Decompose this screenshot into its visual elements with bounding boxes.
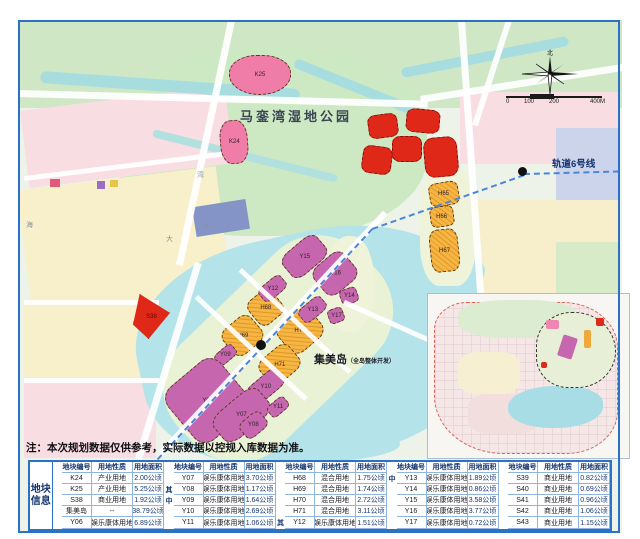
table-cell-land-use: -- (92, 506, 133, 517)
table-cell-land-use: 娱乐康体用地 (204, 484, 245, 495)
table-column-header: 用地性质 (92, 462, 133, 473)
table-qizhong-marker (53, 506, 62, 517)
parcel-unlabeled (360, 144, 394, 176)
table-row-header: 地块信息 (30, 462, 53, 529)
table-cell-land-area: 1.75公顷 (356, 473, 387, 484)
table-column-header: 地块编号 (62, 462, 92, 473)
rail-station-dot (518, 167, 527, 176)
scale-tick: 400M (590, 99, 605, 105)
parcel-label: H67 (439, 248, 450, 254)
table-cell-parcel-id: Y06 (62, 517, 92, 528)
island-label: 集美岛 (314, 354, 347, 366)
table-qizhong-marker (165, 517, 174, 528)
table-cell-land-use: 商业用地 (538, 517, 579, 528)
table-qizhong-marker: 其 (276, 517, 285, 528)
table-cell-land-area: 1.89公顷 (468, 473, 499, 484)
table-cell-parcel-id: S40 (508, 484, 538, 495)
parcel-label: S38 (146, 314, 157, 320)
table-cell-land-use: 娱乐康体用地 (204, 495, 245, 506)
table-cell-parcel-id: H69 (285, 484, 315, 495)
table-group-1: 地块编号用地性质用地面积K24产业用地2.00公顷K25产业用地5.25公顷S3… (53, 462, 164, 529)
table-cell-land-area: 1.15公顷 (579, 517, 610, 528)
table-qizhong-marker: 其 (165, 484, 174, 495)
table-column-header: 用地性质 (427, 462, 468, 473)
table-qizhong-marker (499, 473, 508, 484)
table-cell-land-area: 2.69公顷 (245, 506, 276, 517)
table-cell-parcel-id: Y16 (397, 506, 427, 517)
table-cell-land-area: 38.79公顷 (133, 506, 164, 517)
table-column-header: 用地面积 (579, 462, 610, 473)
table-cell-land-use: 娱乐康体用地 (427, 495, 468, 506)
table-cell-land-area: 0.86公顷 (468, 484, 499, 495)
table-cell-parcel-id: Y10 (174, 506, 204, 517)
table-group-4: 地块编号用地性质用地面积中Y13娱乐康体用地1.89公顷Y14娱乐康体用地0.8… (388, 462, 499, 529)
parcel-label: Y17 (331, 313, 342, 319)
table-qizhong-marker (388, 517, 397, 528)
road-char: 海 (26, 220, 33, 230)
table-cell-land-area: 2.00公顷 (133, 473, 164, 484)
scale-bar: 0 100 200 400M (506, 92, 606, 106)
table-qizhong-marker (53, 484, 62, 495)
parcel-unlabeled (366, 112, 399, 140)
parcel-label: Y08 (248, 422, 259, 428)
table-cell-parcel-id: K25 (62, 484, 92, 495)
inset-overview-map (427, 293, 630, 459)
table-column-header: 用地面积 (468, 462, 499, 473)
table-cell-land-use: 产业用地 (92, 473, 133, 484)
table-qizhong-marker (388, 484, 397, 495)
parcel-label: Y13 (307, 307, 318, 313)
table-column-header: 用地面积 (356, 462, 387, 473)
table-column-header: 地块编号 (397, 462, 427, 473)
inset-parcel-red (596, 318, 604, 326)
table-cell-parcel-id: Y15 (397, 495, 427, 506)
table-qizhong-marker (499, 495, 508, 506)
table-cell-land-use: 混合用地 (315, 506, 356, 517)
table-cell-land-use: 商业用地 (538, 473, 579, 484)
table-cell-land-area: 3.11公顷 (356, 506, 387, 517)
table-qizhong-marker (165, 473, 174, 484)
parcel-label: K24 (229, 139, 240, 145)
table-marker-cell (276, 462, 285, 473)
table-cell-land-use: 混合用地 (315, 473, 356, 484)
table-cell-land-area: 0.69公顷 (579, 484, 610, 495)
compass-north-label: 北 (547, 49, 553, 57)
table-cell-land-use: 娱乐康体用地 (204, 517, 245, 528)
table-cell-land-area: 0.96公顷 (579, 495, 610, 506)
table-cell-land-area: 1.51公顷 (356, 517, 387, 528)
table-qizhong-marker (165, 506, 174, 517)
planning-map-page: { "note": "注：本次规划数据仅供参考，实际数据以控规入库数据为准。",… (0, 0, 640, 539)
table-cell-land-use: 商业用地 (538, 506, 579, 517)
table-cell-parcel-id: Y09 (174, 495, 204, 506)
table-qizhong-marker (53, 473, 62, 484)
table-group-5: 地块编号用地性质用地面积S39商业用地0.82公顷S40商业用地0.69公顷S4… (499, 462, 610, 529)
table-qizhong-marker (388, 495, 397, 506)
table-cell-parcel-id: H71 (285, 506, 315, 517)
parcel-label: K25 (255, 72, 266, 78)
table-cell-parcel-id: Y08 (174, 484, 204, 495)
table-cell-land-area: 2.72公顷 (356, 495, 387, 506)
table-qizhong-marker (499, 506, 508, 517)
inset-parcel-pink (546, 320, 559, 329)
table-cell-land-area: 1.64公顷 (245, 495, 276, 506)
table-cell-land-use: 娱乐康体用地 (427, 484, 468, 495)
island-label-group: 集美岛（全岛整体开发） (314, 350, 395, 368)
small-block (50, 179, 60, 187)
table-cell-parcel-id: H68 (285, 473, 315, 484)
table-marker-cell (388, 462, 397, 473)
table-column-header: 用地面积 (245, 462, 276, 473)
table-cell-land-use: 产业用地 (92, 484, 133, 495)
table-qizhong-marker (388, 506, 397, 517)
table-cell-land-area: 6.89公顷 (133, 517, 164, 528)
table-cell-land-use: 商业用地 (538, 495, 579, 506)
table-cell-land-area: 3.58公顷 (468, 495, 499, 506)
inset-parcel-orange (584, 330, 591, 348)
table-cell-land-area: 1.06公顷 (245, 517, 276, 528)
table-cell-land-area: 1.06公顷 (579, 506, 610, 517)
table-marker-cell (165, 462, 174, 473)
parcel-label: H65 (438, 191, 449, 197)
rail-line-label: 轨道6号线 (552, 156, 595, 170)
table-group-2: 地块编号用地性质用地面积Y07娱乐康体用地3.70公顷其Y08娱乐康体用地1.1… (165, 462, 276, 529)
table-cell-land-use: 娱乐康体用地 (204, 473, 245, 484)
table-cell-parcel-id: S38 (62, 495, 92, 506)
table-cell-land-area: 0.72公顷 (468, 517, 499, 528)
small-block (97, 181, 105, 189)
park-label: 马銮湾湿地公园 (240, 106, 352, 125)
table-cell-land-area: 1.74公顷 (356, 484, 387, 495)
table-cell-land-area: 3.77公顷 (468, 506, 499, 517)
table-qizhong-marker (53, 517, 62, 528)
table-cell-land-use: 娱乐康体用地 (427, 506, 468, 517)
parcel-label: Y09 (220, 352, 231, 358)
parcel-label: Y11 (273, 404, 283, 410)
map-disclaimer-note: 注：本次规划数据仅供参考，实际数据以控规入库数据为准。 (26, 440, 310, 455)
parcel-K25: K25 (229, 55, 291, 95)
table-cell-land-area: 1.92公顷 (133, 495, 164, 506)
inset-parcel-red (541, 362, 547, 368)
table-column-header: 用地性质 (204, 462, 245, 473)
parcel-label: H66 (436, 214, 447, 220)
table-qizhong-marker (276, 506, 285, 517)
parcel-label: Y12 (267, 286, 278, 292)
table-cell-parcel-id: S42 (508, 506, 538, 517)
table-cell-land-use: 商业用地 (92, 495, 133, 506)
table-cell-parcel-id: S43 (508, 517, 538, 528)
table-qizhong-marker (499, 517, 508, 528)
road-char: 道 (202, 222, 209, 232)
table-qizhong-marker (276, 484, 285, 495)
table-column-header: 地块编号 (285, 462, 315, 473)
table-cell-parcel-id: H70 (285, 495, 315, 506)
inset-yellow-area (458, 352, 520, 394)
table-cell-land-use: 娱乐康体用地 (427, 473, 468, 484)
table-column-header: 地块编号 (508, 462, 538, 473)
table-cell-land-use: 混合用地 (315, 484, 356, 495)
parcel-label: Y14 (344, 293, 355, 299)
scale-tick: 100 (524, 99, 534, 105)
table-cell-parcel-id: S39 (508, 473, 538, 484)
table-column-header: 地块编号 (174, 462, 204, 473)
table-qizhong-marker (276, 473, 285, 484)
scale-tick: 200 (549, 99, 559, 105)
table-cell-land-use: 娱乐康体用地 (204, 506, 245, 517)
small-block (110, 180, 118, 187)
table-qizhong-marker (499, 484, 508, 495)
table-cell-land-use: 混合用地 (315, 495, 356, 506)
table-cell-parcel-id: Y12 (285, 517, 315, 528)
table-cell-parcel-id: Y07 (174, 473, 204, 484)
table-column-header: 用地性质 (315, 462, 356, 473)
parcel-label: H68 (260, 305, 271, 311)
table-cell-land-use: 商业用地 (538, 484, 579, 495)
table-cell-land-area: 5.25公顷 (133, 484, 164, 495)
table-cell-land-area: 0.82公顷 (579, 473, 610, 484)
table-cell-parcel-id: S41 (508, 495, 538, 506)
parcel-label: Y15 (299, 254, 310, 260)
table-cell-land-use: 娱乐康体用地 (92, 517, 133, 528)
table-qizhong-marker (53, 495, 62, 506)
table-qizhong-marker: 中 (165, 495, 174, 506)
parcel-H67: H67 (428, 228, 461, 274)
parcel-unlabeled (405, 108, 441, 135)
parcel-label: Y10 (260, 384, 271, 390)
table-cell-land-use: 娱乐康体用地 (427, 517, 468, 528)
table-column-header: 用地面积 (133, 462, 164, 473)
parcel-unlabeled (422, 136, 459, 179)
road-char: 湾 (197, 170, 204, 180)
table-qizhong-marker (276, 495, 285, 506)
table-cell-land-use: 娱乐康体用地 (315, 517, 356, 528)
table-cell-parcel-id: Y13 (397, 473, 427, 484)
compass-rose-icon: 北 (520, 48, 582, 98)
table-cell-parcel-id: 集美岛 (62, 506, 92, 517)
table-cell-parcel-id: K24 (62, 473, 92, 484)
table-cell-parcel-id: Y14 (397, 484, 427, 495)
table-cell-parcel-id: Y17 (397, 517, 427, 528)
inset-lake (508, 386, 603, 428)
table-cell-land-area: 3.70公顷 (245, 473, 276, 484)
table-qizhong-marker: 中 (388, 473, 397, 484)
table-groups: 地块编号用地性质用地面积K24产业用地2.00公顷K25产业用地5.25公顷S3… (53, 462, 611, 529)
road (24, 378, 159, 383)
table-group-3: 地块编号用地性质用地面积H68混合用地1.75公顷H69混合用地1.74公顷H7… (276, 462, 387, 529)
table-column-header: 用地性质 (538, 462, 579, 473)
island-sublabel: （全岛整体开发） (347, 359, 395, 365)
table-cell-parcel-id: Y11 (174, 517, 204, 528)
parcel-unlabeled (392, 136, 422, 162)
table-marker-cell (53, 462, 62, 473)
parcel-info-table: 地块信息 地块编号用地性质用地面积K24产业用地2.00公顷K25产业用地5.2… (28, 460, 612, 531)
road-char: 大 (166, 234, 173, 244)
table-marker-cell (499, 462, 508, 473)
scale-tick: 0 (506, 99, 509, 105)
table-cell-land-area: 1.17公顷 (245, 484, 276, 495)
rail-station-dot (256, 340, 266, 350)
